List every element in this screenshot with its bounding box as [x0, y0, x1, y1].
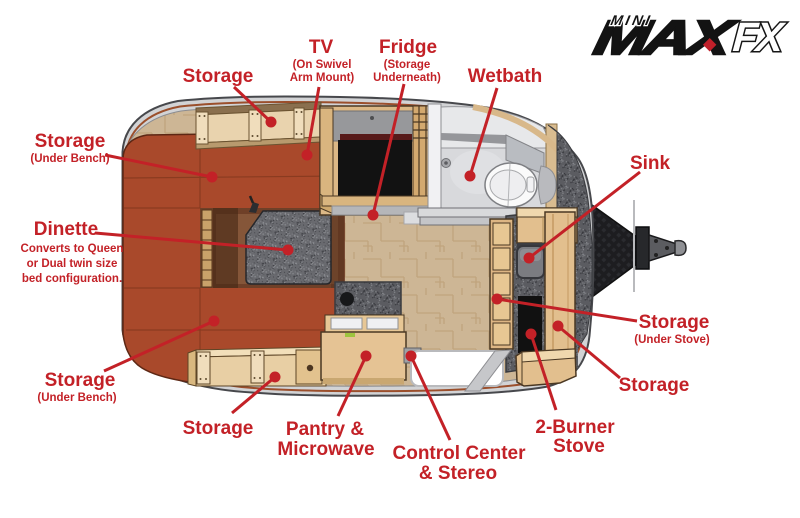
svg-text:Pantry &: Pantry & — [286, 419, 364, 440]
svg-text:Storage: Storage — [639, 312, 710, 333]
svg-text:Microwave: Microwave — [277, 439, 374, 460]
svg-text:Storage: Storage — [183, 418, 254, 439]
svg-text:TV: TV — [309, 37, 334, 58]
svg-text:Fridge: Fridge — [379, 37, 437, 58]
svg-text:Storage: Storage — [45, 370, 116, 391]
svg-text:Storage: Storage — [619, 375, 690, 396]
svg-text:Dinette: Dinette — [34, 219, 98, 240]
svg-text:(On Swivel: (On Swivel — [293, 59, 352, 71]
svg-text:FX: FX — [731, 14, 787, 60]
svg-text:Wetbath: Wetbath — [468, 66, 543, 87]
svg-text:(Under Stove): (Under Stove) — [634, 334, 710, 346]
svg-text:Arm Mount): Arm Mount) — [290, 72, 355, 84]
svg-text:Underneath): Underneath) — [373, 72, 441, 84]
svg-text:Converts to Queen: Converts to Queen — [21, 243, 124, 255]
svg-text:(Under Bench): (Under Bench) — [37, 392, 116, 404]
svg-text:(Storage: (Storage — [384, 59, 431, 71]
svg-text:MINI: MINI — [609, 12, 654, 28]
svg-text:(Under Bench): (Under Bench) — [30, 153, 109, 165]
svg-text:2-Burner: 2-Burner — [535, 417, 615, 438]
svg-text:Stove: Stove — [553, 436, 605, 457]
svg-text:or Dual twin size: or Dual twin size — [27, 258, 118, 270]
svg-text:Storage: Storage — [183, 66, 254, 87]
svg-text:Storage: Storage — [35, 131, 106, 152]
svg-text:Control Center: Control Center — [393, 443, 527, 464]
svg-text:bed configuration.: bed configuration. — [22, 273, 122, 285]
svg-text:Sink: Sink — [630, 153, 671, 174]
svg-text:& Stereo: & Stereo — [419, 463, 497, 484]
